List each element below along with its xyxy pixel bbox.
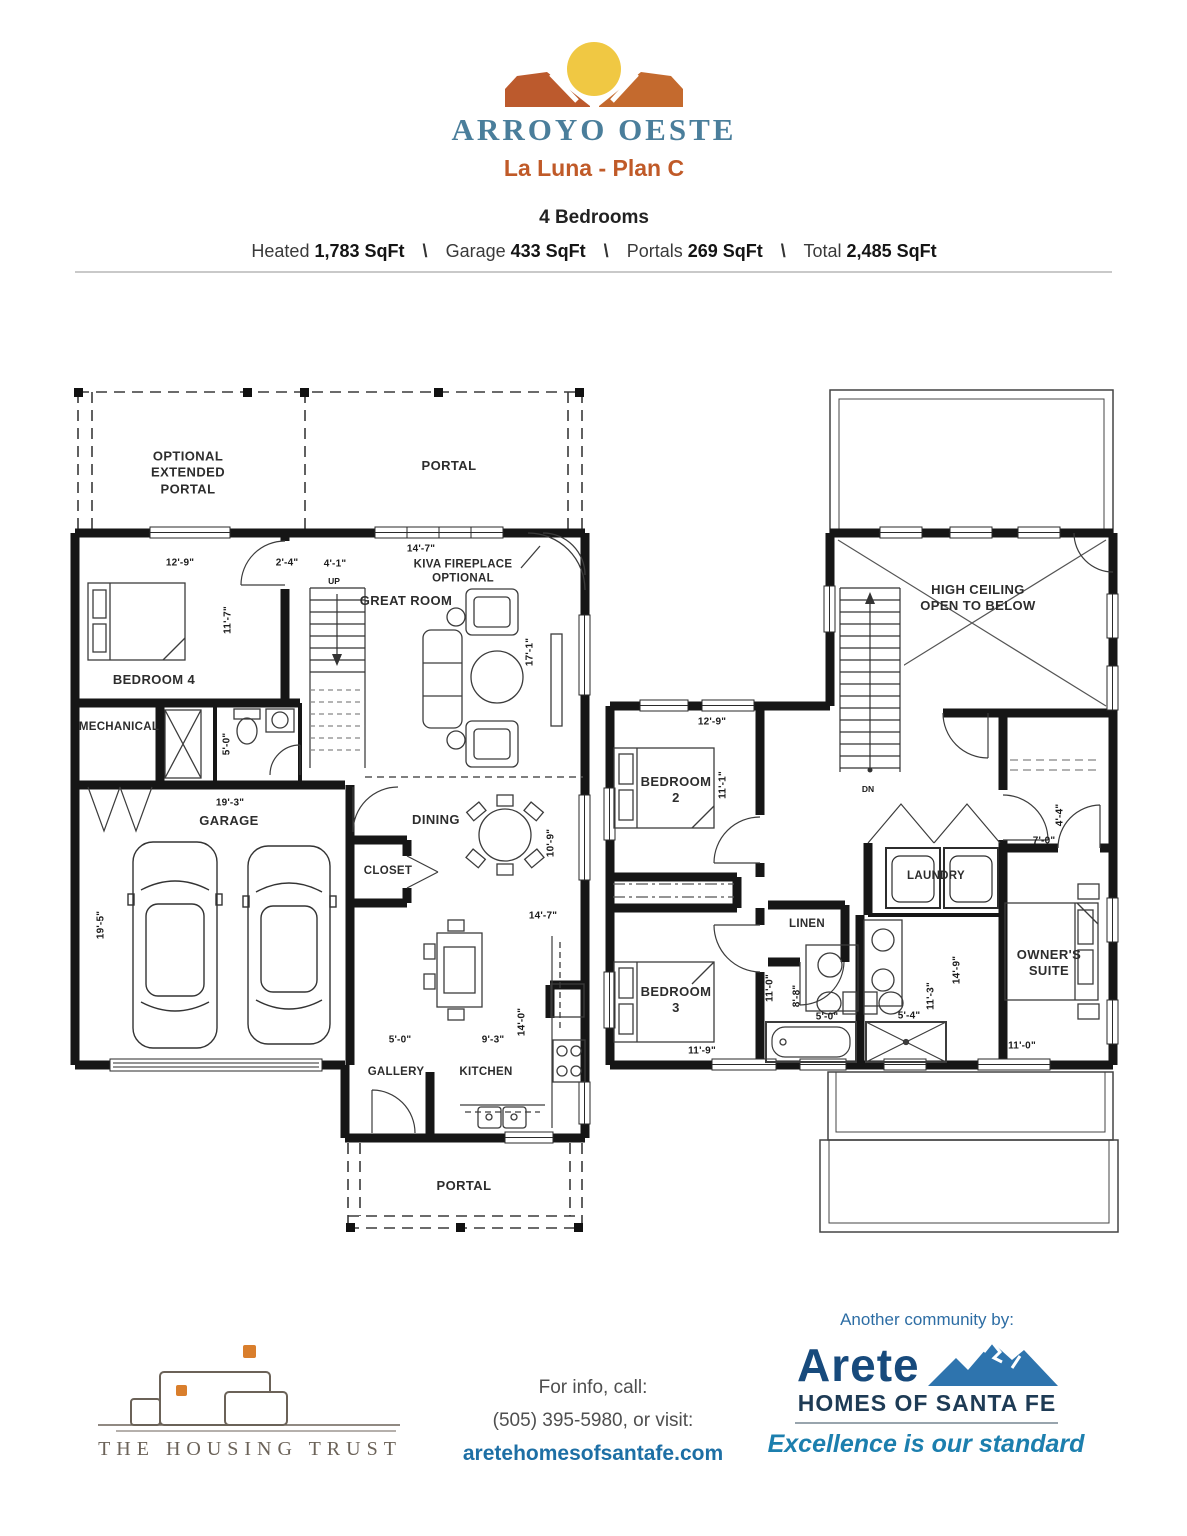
car [243, 846, 336, 1044]
dim-bath1-depth: 8'-8" [792, 985, 803, 1008]
homes-of-santa-fe: HOMES OF SANTA FE [798, 1390, 1057, 1417]
arete-wordmark: Arete [797, 1338, 920, 1392]
stair-up-label: UP [328, 576, 340, 586]
floor-plans-drawing [0, 0, 1187, 1536]
dim-kitchen-depth: 14'-0" [517, 1008, 528, 1036]
toilet-sink [234, 709, 294, 744]
first-floor-plan [74, 388, 590, 1232]
dim-hall: 2'-4" [276, 558, 299, 569]
room-label-owners-suite: OWNER'S SUITE [1017, 947, 1081, 980]
dim-owner-depth: 14'-9" [952, 956, 963, 984]
dim-dining-depth: 10'-9" [546, 829, 557, 857]
dim-gallery-width: 5'-0" [389, 1035, 412, 1046]
kitchen-fixtures [424, 920, 585, 1128]
dim-island-width: 9'-3" [482, 1035, 505, 1046]
room-label-linen: LINEN [789, 917, 825, 931]
mountain-icon [928, 1338, 1062, 1388]
website-link: aretehomesofsantafe.com [463, 1442, 723, 1466]
flyer-page: ARROYO OESTE La Luna - Plan C 4 Bedrooms… [0, 0, 1187, 1536]
housing-trust-name: THE HOUSING TRUST [98, 1438, 402, 1461]
dim-portal-width: 14'-7" [407, 544, 435, 555]
dim-bath1-width: 5'-0" [816, 1012, 839, 1023]
great-room-furniture [423, 589, 562, 767]
dim-bedroom4-width: 12'-9" [166, 558, 194, 569]
room-label-great-room: GREAT ROOM [360, 593, 453, 609]
room-label-laundry: LAUNDRY [907, 869, 965, 883]
car [128, 842, 222, 1048]
dim-bath2-depth: 11'-3" [926, 982, 937, 1010]
dining-table [466, 795, 544, 875]
dim-bedroom2-width: 12'-9" [698, 717, 726, 728]
room-label-closet: CLOSET [364, 864, 412, 878]
dim-bath-depth: 5'-0" [222, 733, 233, 756]
stair-dn-label: DN [862, 784, 874, 794]
arete-divider [795, 1422, 1058, 1424]
dim-bedroom3-right: 11'-0" [765, 974, 776, 1002]
dim-stair-width: 4'-1" [324, 559, 347, 570]
phone-line: (505) 395-5980, or visit: [493, 1410, 694, 1432]
kiva-fireplace [521, 533, 585, 590]
dim-bath2-width: 5'-4" [898, 1011, 921, 1022]
room-label-garage: GARAGE [199, 813, 258, 829]
room-label-bedroom3: BEDROOM 3 [641, 984, 712, 1017]
bed [88, 583, 185, 660]
room-label-optional-portal: OPTIONAL EXTENDED PORTAL [151, 449, 225, 498]
dim-bedroom4-depth: 11'-7" [223, 606, 234, 634]
door-arcs [714, 533, 1113, 1005]
dim-garage-width: 19'-3" [216, 798, 244, 809]
arete-tagline: Excellence is our standard [768, 1430, 1085, 1459]
room-label-gallery: GALLERY [368, 1065, 425, 1079]
second-floor-plan [604, 390, 1118, 1232]
dim-dining-width: 14'-7" [529, 911, 557, 922]
dim-great-room-depth: 17'-1" [525, 638, 536, 666]
info-call-line: For info, call: [539, 1377, 648, 1399]
housing-trust-logo-icon [90, 1335, 410, 1435]
stairs-up [310, 588, 365, 768]
dim-closet-width: 7'-0" [1033, 836, 1056, 847]
room-label-bedroom2: BEDROOM 2 [641, 774, 712, 807]
dim-bedroom3-width: 11'-9" [688, 1046, 716, 1057]
room-label-portal-top: PORTAL [422, 458, 477, 474]
label-high-ceiling: HIGH CEILING OPEN TO BELOW [920, 582, 1035, 615]
label-kiva-fireplace: KIVA FIREPLACE OPTIONAL [414, 558, 513, 587]
room-label-mechanical: MECHANICAL [79, 720, 159, 734]
dim-owner-width: 11'-0" [1008, 1041, 1036, 1052]
dim-garage-depth: 19'-5" [96, 911, 107, 939]
room-label-dining: DINING [412, 812, 460, 828]
roof-outline [820, 1072, 1118, 1232]
dim-closet-depth: 4'-4" [1055, 804, 1066, 827]
room-label-bedroom4: BEDROOM 4 [113, 672, 195, 688]
room-label-portal-bottom: PORTAL [437, 1178, 492, 1194]
roof-outline [830, 390, 1113, 533]
mechanical-chase [165, 710, 201, 778]
community-by-label: Another community by: [840, 1310, 1014, 1330]
room-label-kitchen: KITCHEN [459, 1065, 512, 1079]
dim-bedroom2-depth: 11'-1" [718, 771, 729, 799]
